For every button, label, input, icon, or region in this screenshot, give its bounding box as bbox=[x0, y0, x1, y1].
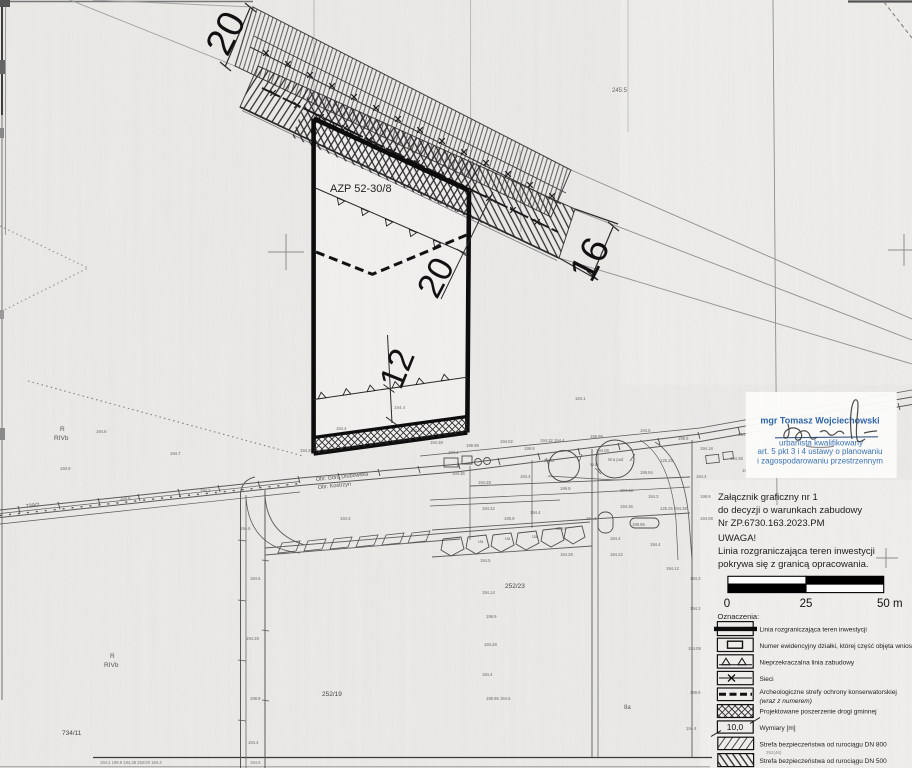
svg-text:Wymiary [m]: Wymiary [m] bbox=[760, 725, 796, 732]
svg-text:193.8: 193.8 bbox=[120, 496, 131, 501]
svg-text:194.7: 194.7 bbox=[170, 451, 181, 456]
svg-text:Linia rozgraniczająca teren in: Linia rozgraniczająca teren inwestycji bbox=[718, 546, 875, 557]
svg-text:Oznaczenia:: Oznaczenia: bbox=[718, 612, 760, 621]
svg-text:734/11: 734/11 bbox=[62, 730, 82, 737]
svg-text:RIVb: RIVb bbox=[54, 435, 69, 442]
svg-text:Strefa bezpieczeństwa od ruroc: Strefa bezpieczeństwa od rurociągu DN 80… bbox=[760, 741, 888, 748]
svg-text:194.5: 194.5 bbox=[480, 558, 491, 563]
svg-text:194.4: 194.4 bbox=[394, 405, 406, 410]
svg-text:199.96: 199.96 bbox=[632, 522, 645, 527]
svg-text:194.12: 194.12 bbox=[666, 566, 679, 571]
svg-text:194.22: 194.22 bbox=[482, 506, 495, 511]
svg-text:252/19: 252/19 bbox=[322, 691, 342, 698]
svg-text:252/23: 252/23 bbox=[505, 583, 525, 590]
svg-text:194.4: 194.4 bbox=[482, 672, 493, 677]
svg-text:Załącznik graficzny nr 1: Załącznik graficzny nr 1 bbox=[718, 492, 818, 503]
svg-text:199.9: 199.9 bbox=[700, 494, 711, 499]
svg-text:199.9: 199.9 bbox=[678, 436, 689, 441]
svg-text:i zagospodarowaniu przestrzenn: i zagospodarowaniu przestrzennym bbox=[757, 457, 883, 466]
svg-text:184.1: 184.1 bbox=[575, 396, 586, 401]
svg-text:194.4: 194.4 bbox=[696, 474, 707, 479]
svg-text:Ua: Ua bbox=[478, 539, 484, 544]
svg-text:R: R bbox=[110, 653, 115, 660]
svg-text:194.8: 194.8 bbox=[96, 429, 107, 434]
svg-text:Projektowane poszerzenie drogi: Projektowane poszerzenie drogi gminnej bbox=[760, 709, 877, 716]
svg-text:194.36: 194.36 bbox=[620, 504, 633, 509]
svg-text:194.28: 194.28 bbox=[560, 552, 573, 557]
svg-text:Nr ZP.6730.163.2023.PM: Nr ZP.6730.163.2023.PM bbox=[718, 518, 825, 529]
svg-text:199.9: 199.9 bbox=[504, 516, 515, 521]
svg-text:194.5: 194.5 bbox=[250, 760, 261, 765]
svg-text:Sieci: Sieci bbox=[760, 676, 774, 683]
svg-text:194.28: 194.28 bbox=[478, 480, 491, 485]
svg-text:RIVb: RIVb bbox=[104, 662, 119, 669]
svg-text:194.32 194.4: 194.32 194.4 bbox=[540, 438, 565, 443]
svg-text:Numer ewidencyjny działki, któ: Numer ewidencyjny działki, której część … bbox=[760, 643, 912, 650]
svg-text:(wraz z numerem): (wraz z numerem) bbox=[760, 698, 812, 705]
svg-text:194.3: 194.3 bbox=[340, 516, 351, 521]
svg-text:194.18: 194.18 bbox=[700, 446, 713, 451]
svg-text:194.02: 194.02 bbox=[500, 439, 513, 444]
svg-text:193.9: 193.9 bbox=[60, 466, 71, 471]
svg-text:194.28: 194.28 bbox=[246, 636, 259, 641]
svg-text:Nieprzekraczalna linia zabudow: Nieprzekraczalna linia zabudowy bbox=[760, 660, 855, 667]
svg-text:194.4: 194.4 bbox=[248, 740, 259, 745]
svg-text:194.4: 194.4 bbox=[336, 426, 347, 431]
svg-text:194.5: 194.5 bbox=[640, 428, 651, 433]
svg-text:UWAGA!: UWAGA! bbox=[718, 533, 756, 544]
svg-text:Archeologiczne strefy ochrony: Archeologiczne strefy ochrony konserwato… bbox=[760, 689, 897, 696]
svg-text:R: R bbox=[60, 426, 65, 433]
svg-text:194.08: 194.08 bbox=[700, 516, 713, 521]
svg-text:194.38: 194.38 bbox=[430, 440, 443, 445]
svg-text:194.5: 194.5 bbox=[250, 576, 261, 581]
svg-text:Ua: Ua bbox=[505, 536, 511, 541]
svg-text:199.96 194.5: 199.96 194.5 bbox=[486, 696, 511, 701]
svg-text:W.a pud: W.a pud bbox=[608, 457, 624, 462]
svg-text:AZP 52-30/8: AZP 52-30/8 bbox=[330, 183, 392, 195]
svg-text:194.2 199.9 194.38 252/40: 194.2 199.9 194.38 252/40 194.4 bbox=[100, 760, 162, 765]
svg-text:0: 0 bbox=[724, 598, 730, 610]
svg-text:25: 25 bbox=[800, 598, 813, 610]
svg-text:194.3: 194.3 bbox=[648, 494, 659, 499]
svg-text:art. 5 pkt 3 i 4 ustawy o plan: art. 5 pkt 3 i 4 ustawy o planowaniu bbox=[758, 447, 883, 456]
svg-text:pokrywa się z granicą opracowa: pokrywa się z granicą opracowania. bbox=[718, 559, 869, 570]
svg-text:194.14: 194.14 bbox=[482, 590, 495, 595]
svg-text:199.9: 199.9 bbox=[524, 446, 535, 451]
svg-text:10,0: 10,0 bbox=[727, 722, 744, 732]
svg-text:199.9: 199.9 bbox=[250, 696, 261, 701]
svg-text:194.4: 194.4 bbox=[650, 542, 661, 547]
svg-text:Linia rozgraniczająca teren in: Linia rozgraniczająca teren inwestycji bbox=[760, 627, 867, 634]
svg-text:199.94: 199.94 bbox=[640, 470, 653, 475]
svg-text:125.25: 125.25 bbox=[660, 458, 673, 463]
svg-text:8a: 8a bbox=[624, 705, 631, 711]
svg-text:194.36: 194.36 bbox=[452, 471, 465, 476]
svg-text:194.4: 194.4 bbox=[610, 536, 621, 541]
svg-text:194.4: 194.4 bbox=[520, 474, 531, 479]
svg-text:252(46): 252(46) bbox=[766, 750, 782, 755]
svg-text:194.6: 194.6 bbox=[240, 526, 251, 531]
svg-text:194.28: 194.28 bbox=[484, 642, 497, 647]
svg-text:mgr Tomasz Wojciechowski: mgr Tomasz Wojciechowski bbox=[760, 416, 879, 426]
svg-text:194.4: 194.4 bbox=[448, 450, 459, 455]
svg-text:50 m: 50 m bbox=[877, 598, 903, 610]
svg-text:199.96: 199.96 bbox=[466, 443, 479, 448]
svg-text:199.9: 199.9 bbox=[486, 614, 497, 619]
svg-text:245:5: 245:5 bbox=[612, 88, 628, 94]
svg-text:194.08: 194.08 bbox=[688, 646, 701, 651]
svg-text:194.18: 194.18 bbox=[620, 488, 633, 493]
svg-text:194.22: 194.22 bbox=[610, 552, 623, 557]
svg-text:do decyzji o warunkach zabudow: do decyzji o warunkach zabudowy bbox=[718, 505, 862, 516]
svg-text:Strefa bezpieczeństwa od ruroc: Strefa bezpieczeństwa od rurociągu DN 50… bbox=[760, 758, 888, 765]
svg-text:199.99: 199.99 bbox=[590, 434, 603, 439]
svg-text:125.25 194.38: 125.25 194.38 bbox=[660, 506, 687, 511]
svg-text:199.9: 199.9 bbox=[560, 486, 571, 491]
svg-text:194.2: 194.2 bbox=[200, 488, 211, 493]
